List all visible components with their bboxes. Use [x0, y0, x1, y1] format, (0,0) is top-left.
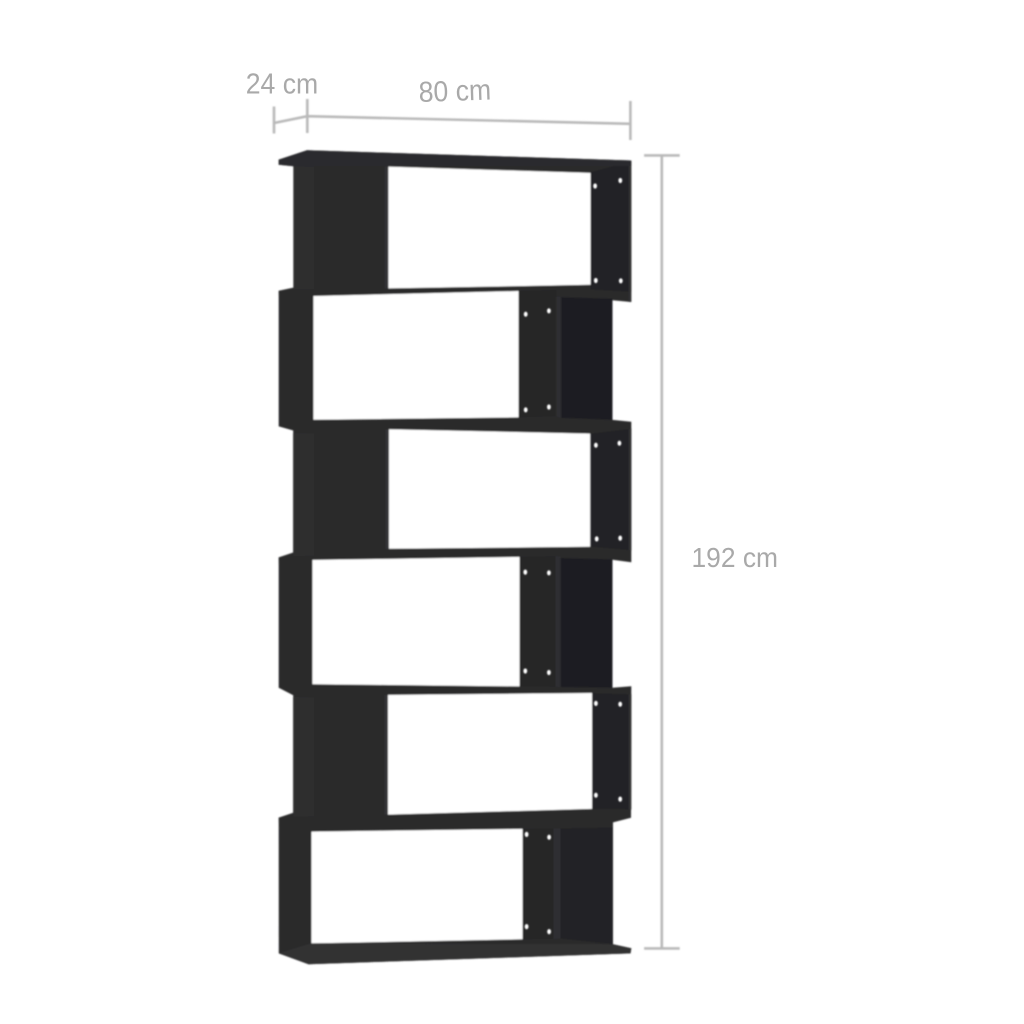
svg-text:80 cm: 80 cm [418, 74, 492, 109]
svg-text:192 cm: 192 cm [692, 542, 779, 573]
svg-text:24 cm: 24 cm [246, 69, 319, 101]
